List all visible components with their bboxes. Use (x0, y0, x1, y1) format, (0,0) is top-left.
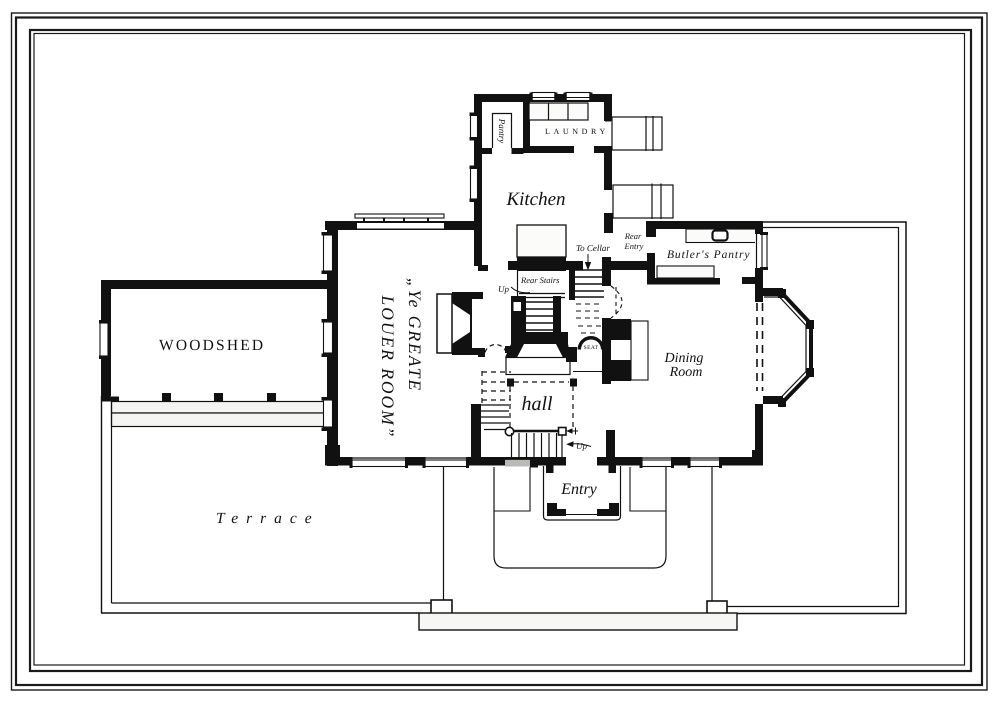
svg-text:Kitchen: Kitchen (505, 189, 565, 210)
svg-text:Up: Up (576, 441, 587, 451)
svg-text:Rear Stairs: Rear Stairs (520, 275, 560, 285)
svg-text:Dining: Dining (664, 351, 704, 366)
svg-text:hall: hall (521, 393, 553, 415)
svg-text:Entry: Entry (560, 481, 597, 498)
svg-text:SEAT: SEAT (584, 345, 599, 351)
svg-text:Rear: Rear (624, 231, 642, 241)
svg-text:WOODSHED: WOODSHED (159, 337, 265, 354)
svg-text:Room: Room (669, 365, 703, 380)
svg-text:To Cellar: To Cellar (576, 243, 610, 253)
svg-text:LAUNDRY: LAUNDRY (545, 127, 609, 136)
svg-text:„Ye GREATE: „Ye GREATE (405, 278, 425, 392)
svg-text:Entry: Entry (624, 241, 644, 251)
svg-text:Up: Up (498, 284, 509, 294)
svg-text:Pantry: Pantry (497, 118, 507, 144)
svg-text:LOUER ROOM”: LOUER ROOM” (378, 294, 398, 438)
svg-text:Butler's Pantry: Butler's Pantry (667, 249, 750, 261)
svg-text:Terrace: Terrace (216, 510, 320, 527)
